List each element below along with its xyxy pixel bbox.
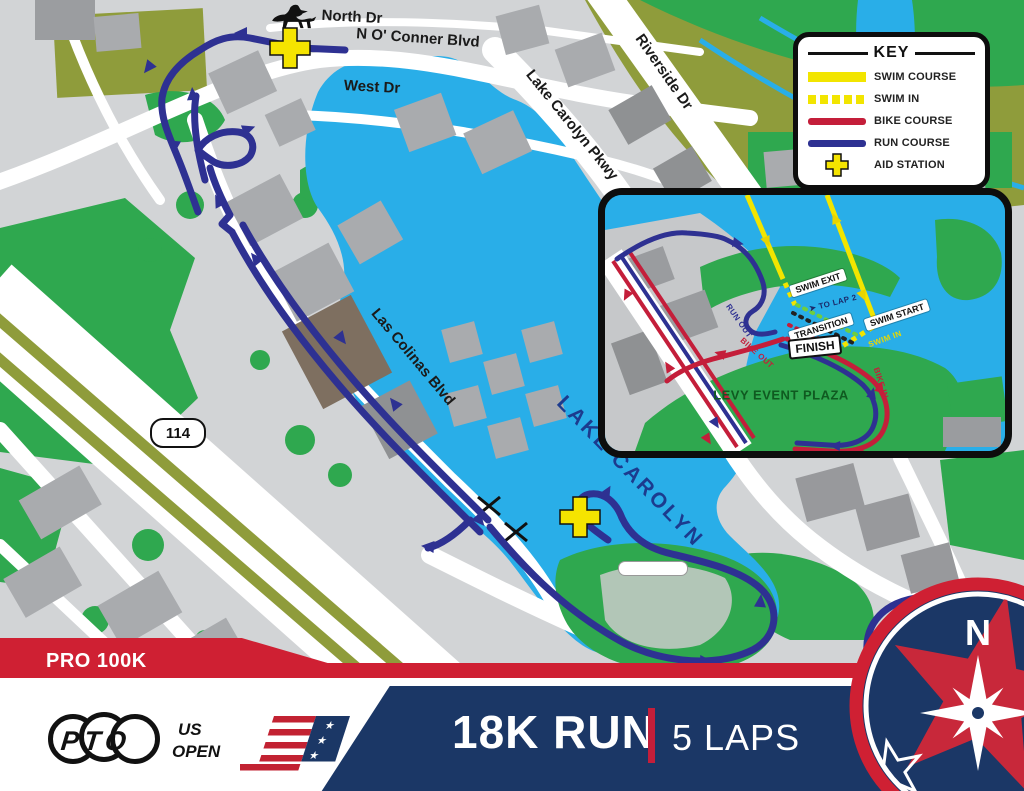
legend-item-aid-station: AID STATION [808, 154, 975, 176]
legend-item-bike-course: BIKE COURSE [808, 110, 975, 132]
run-course-line-icon [808, 140, 866, 147]
street-label-north-dr: North Dr [321, 7, 383, 27]
legend-item-swim-in: SWIM IN [808, 88, 975, 110]
street-label-west-dr: West Dr [343, 77, 400, 97]
legend-title-rule-left [808, 52, 868, 55]
pto-us-open-logo: PTO US OPEN ★ ★ ★ [45, 700, 355, 785]
course-map-poster: North Dr N O' Conner Blvd West Dr Lake C… [0, 0, 1024, 791]
legend-label: BIKE COURSE [874, 115, 953, 127]
legend-title-row: KEY [808, 44, 975, 62]
park-label-capsule [618, 561, 688, 576]
legend-label: SWIM IN [874, 93, 919, 105]
compass-rose: N [845, 575, 1024, 791]
legend-label: SWIM COURSE [874, 71, 956, 83]
logo-flag-icon: ★ ★ ★ [240, 714, 360, 776]
race-category-label: PRO 100K [46, 650, 147, 673]
swim-course-line-icon [808, 72, 866, 82]
bike-course-line-icon [808, 118, 866, 125]
highway-114-shield: 114 [150, 418, 206, 448]
aid-station-cross-icon [808, 153, 866, 177]
levy-event-plaza-label: LEVY EVENT PLAZA [713, 388, 849, 403]
legend-title: KEY [874, 44, 910, 62]
highway-114-number: 114 [166, 425, 190, 442]
logo-us-text: US [178, 720, 202, 740]
laps-count: 5 LAPS [672, 717, 800, 759]
inset-art [605, 195, 1005, 451]
compass-north-label: N [965, 612, 991, 653]
legend-label: RUN COURSE [874, 137, 950, 149]
logo-pto-text: PTO [59, 726, 132, 757]
legend-item-swim-course: SWIM COURSE [808, 66, 975, 88]
swim-in-dashed-icon [808, 95, 866, 104]
transition-inset-map: SWIM EXIT ➤ TO LAP 2 SWIM START TRANSITI… [598, 188, 1012, 458]
legend-title-rule-right [915, 52, 975, 55]
to-lap-arrow-icon: ➤ [808, 303, 817, 313]
legend-box: KEY SWIM COURSE SWIM IN BIKE COURSE RUN … [793, 32, 990, 190]
title-divider [648, 708, 655, 763]
legend-label: AID STATION [874, 159, 945, 171]
logo-open-text: OPEN [172, 742, 220, 762]
event-title: 18K RUN [452, 705, 656, 759]
legend-item-run-course: RUN COURSE [808, 132, 975, 154]
